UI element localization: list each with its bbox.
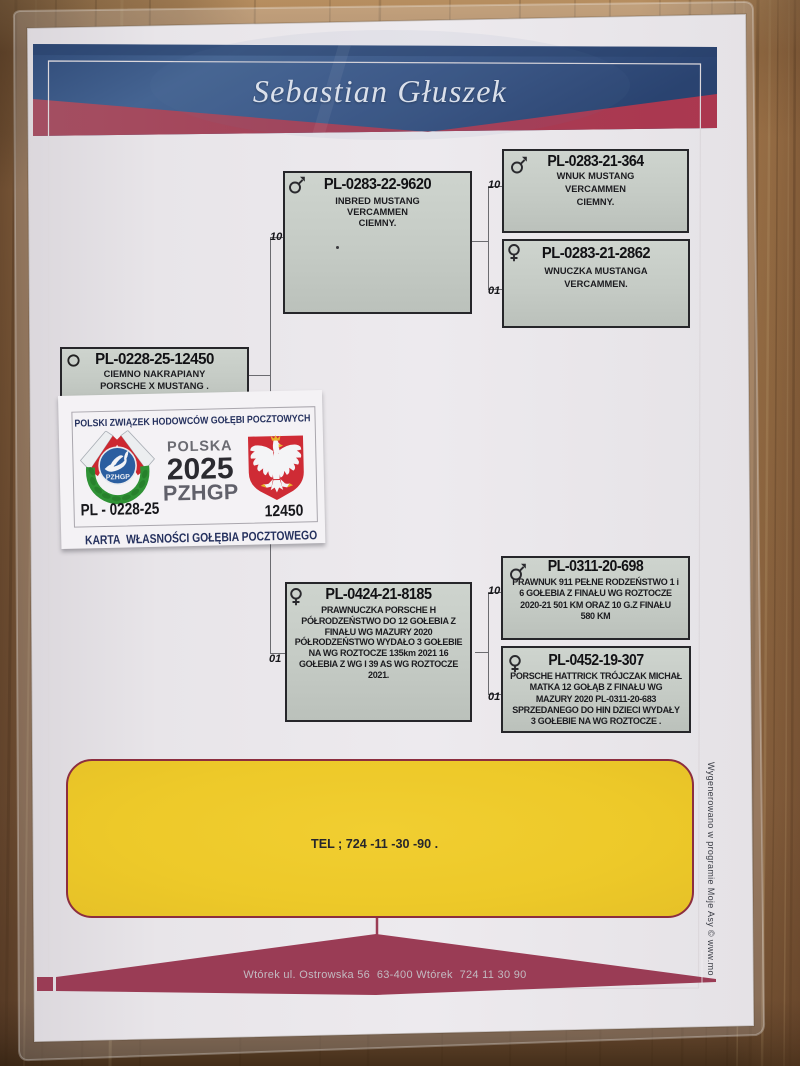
svg-text:PZHGP: PZHGP	[106, 474, 131, 482]
